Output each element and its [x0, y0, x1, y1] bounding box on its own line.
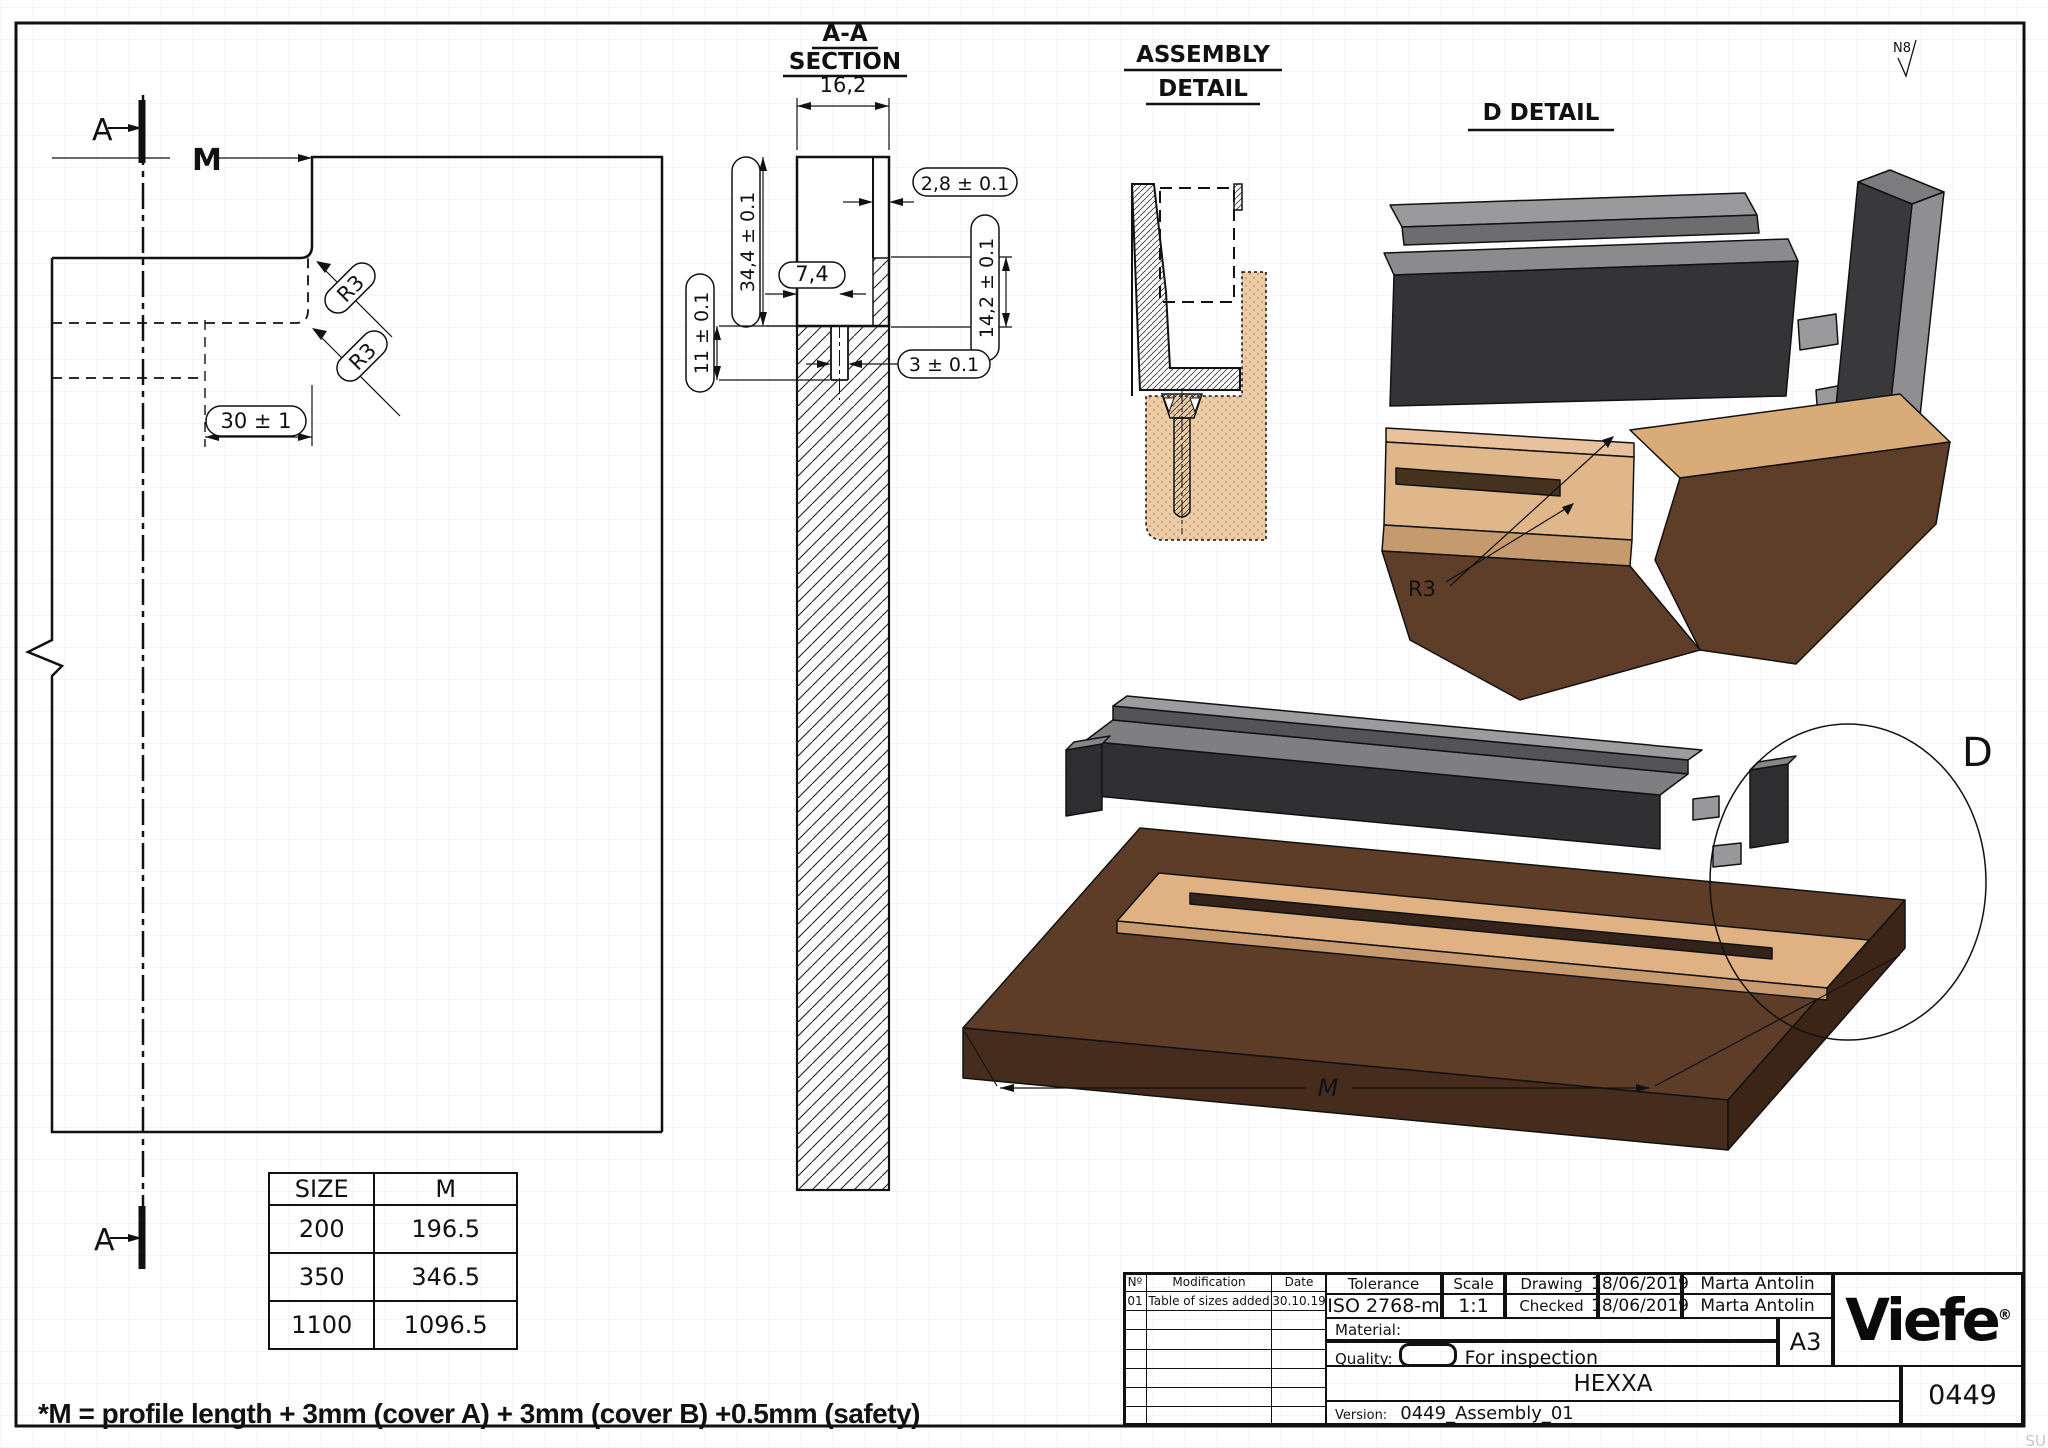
- tolerance-label: Tolerance: [1325, 1272, 1442, 1295]
- dim-16-2: 16,2: [820, 73, 867, 97]
- dim-2-8: 2,8 ± 0.1: [921, 173, 1009, 195]
- section-label-a-top: A: [92, 113, 113, 148]
- table-row: 200 196.5: [269, 1205, 517, 1253]
- rev-col-no: Nº: [1124, 1273, 1147, 1292]
- watermark: SU: [2025, 1432, 2046, 1448]
- revision-row: 01 Table of sizes added 30.10.19: [1124, 1292, 1327, 1311]
- drawing-label: Drawing: [1505, 1272, 1598, 1295]
- m-cell: 1096.5: [374, 1301, 517, 1349]
- drawing-sheet: A A M 30 ± 1 R3 R3: [0, 0, 2048, 1448]
- dim-3: 3 ± 0.1: [909, 354, 979, 376]
- size-table: SIZE M 200 196.5 350 346.5 1100 1096.5: [268, 1172, 518, 1350]
- surface-finish-n8: N8: [1893, 41, 1911, 56]
- drawing-number: 0449: [1901, 1365, 2024, 1426]
- dim-11: 11 ± 0.1: [691, 292, 713, 374]
- material-row: Material:: [1325, 1317, 1778, 1341]
- section-label-a-bottom: A: [94, 1223, 115, 1258]
- checked-by: Marta Antolin: [1682, 1293, 1833, 1319]
- rev-date: 30.10.19: [1272, 1292, 1327, 1311]
- version-row: Version: 0449_Assembly_01: [1325, 1400, 1901, 1426]
- assembly-title-line2: DETAIL: [1158, 76, 1248, 102]
- rev-no: 01: [1124, 1292, 1147, 1311]
- assembly-title-line1: ASSEMBLY: [1136, 42, 1270, 68]
- checked-label: Checked: [1505, 1293, 1598, 1319]
- product-name: HEXXA: [1325, 1365, 1901, 1402]
- scale-value: 1:1: [1442, 1293, 1505, 1319]
- m-formula-note: *M = profile length + 3mm (cover A) + 3m…: [38, 1398, 1138, 1430]
- dim-30: 30 ± 1: [220, 409, 291, 433]
- m-cell: 196.5: [374, 1205, 517, 1253]
- viefe-logo: Viefe®: [1845, 1286, 2012, 1354]
- quality-row: Quality:For inspection: [1325, 1341, 1778, 1367]
- rev-col-mod: Modification: [1147, 1273, 1272, 1292]
- size-cell: 350: [269, 1253, 374, 1301]
- m-length-label: M: [192, 143, 222, 178]
- quality-stamp-oval: [1399, 1343, 1457, 1367]
- table-row: 350 346.5: [269, 1253, 517, 1301]
- dim-14-2: 14,2 ± 0.1: [976, 238, 998, 339]
- aa-title-line2: SECTION: [789, 49, 901, 75]
- scale-label: Scale: [1442, 1272, 1505, 1295]
- section-aa-view: [686, 48, 1017, 1190]
- size-table-header-m: M: [374, 1173, 517, 1205]
- registered-mark: ®: [1998, 1307, 2012, 1323]
- size-table-header: SIZE M: [269, 1173, 517, 1205]
- version-value: 0449_Assembly_01: [1400, 1403, 1573, 1424]
- m-cell: 346.5: [374, 1253, 517, 1301]
- d-detail-r3: R3: [1408, 577, 1436, 601]
- brand-logo-box: Viefe®: [1833, 1272, 2024, 1367]
- d-detail-view: [1382, 130, 1950, 700]
- side-view: [28, 95, 662, 1270]
- paper-size: A3: [1778, 1317, 1833, 1367]
- size-cell: 1100: [269, 1301, 374, 1349]
- assembly-detail-view: [1124, 70, 1282, 540]
- aa-title-line1: A-A: [822, 21, 867, 47]
- version-label: Version:: [1335, 1408, 1387, 1423]
- rev-mod: Table of sizes added: [1147, 1292, 1272, 1311]
- table-row: 1100 1096.5: [269, 1301, 517, 1349]
- d-detail-title: D DETAIL: [1483, 100, 1600, 126]
- break-line: [28, 258, 662, 1132]
- assembly-3d-view: [963, 696, 1986, 1150]
- assembly-3d-m: M: [1318, 1074, 1339, 1102]
- material-label: Material:: [1335, 1321, 1401, 1339]
- assembly-3d-d: D: [1962, 730, 1993, 776]
- rev-col-date: Date: [1272, 1273, 1327, 1292]
- checked-date: 18/06/2019: [1598, 1293, 1682, 1319]
- dim-7-4: 7,4: [795, 262, 828, 286]
- tolerance-value: ISO 2768-m: [1325, 1293, 1442, 1319]
- drawing-by: Marta Antolin: [1682, 1272, 1833, 1295]
- dim-34-4: 34,4 ± 0.1: [737, 192, 759, 293]
- revision-table: Nº Modification Date 01 Table of sizes a…: [1123, 1272, 1327, 1426]
- drawing-date: 18/06/2019: [1598, 1272, 1682, 1295]
- size-table-header-size: SIZE: [269, 1173, 374, 1205]
- size-cell: 200: [269, 1205, 374, 1253]
